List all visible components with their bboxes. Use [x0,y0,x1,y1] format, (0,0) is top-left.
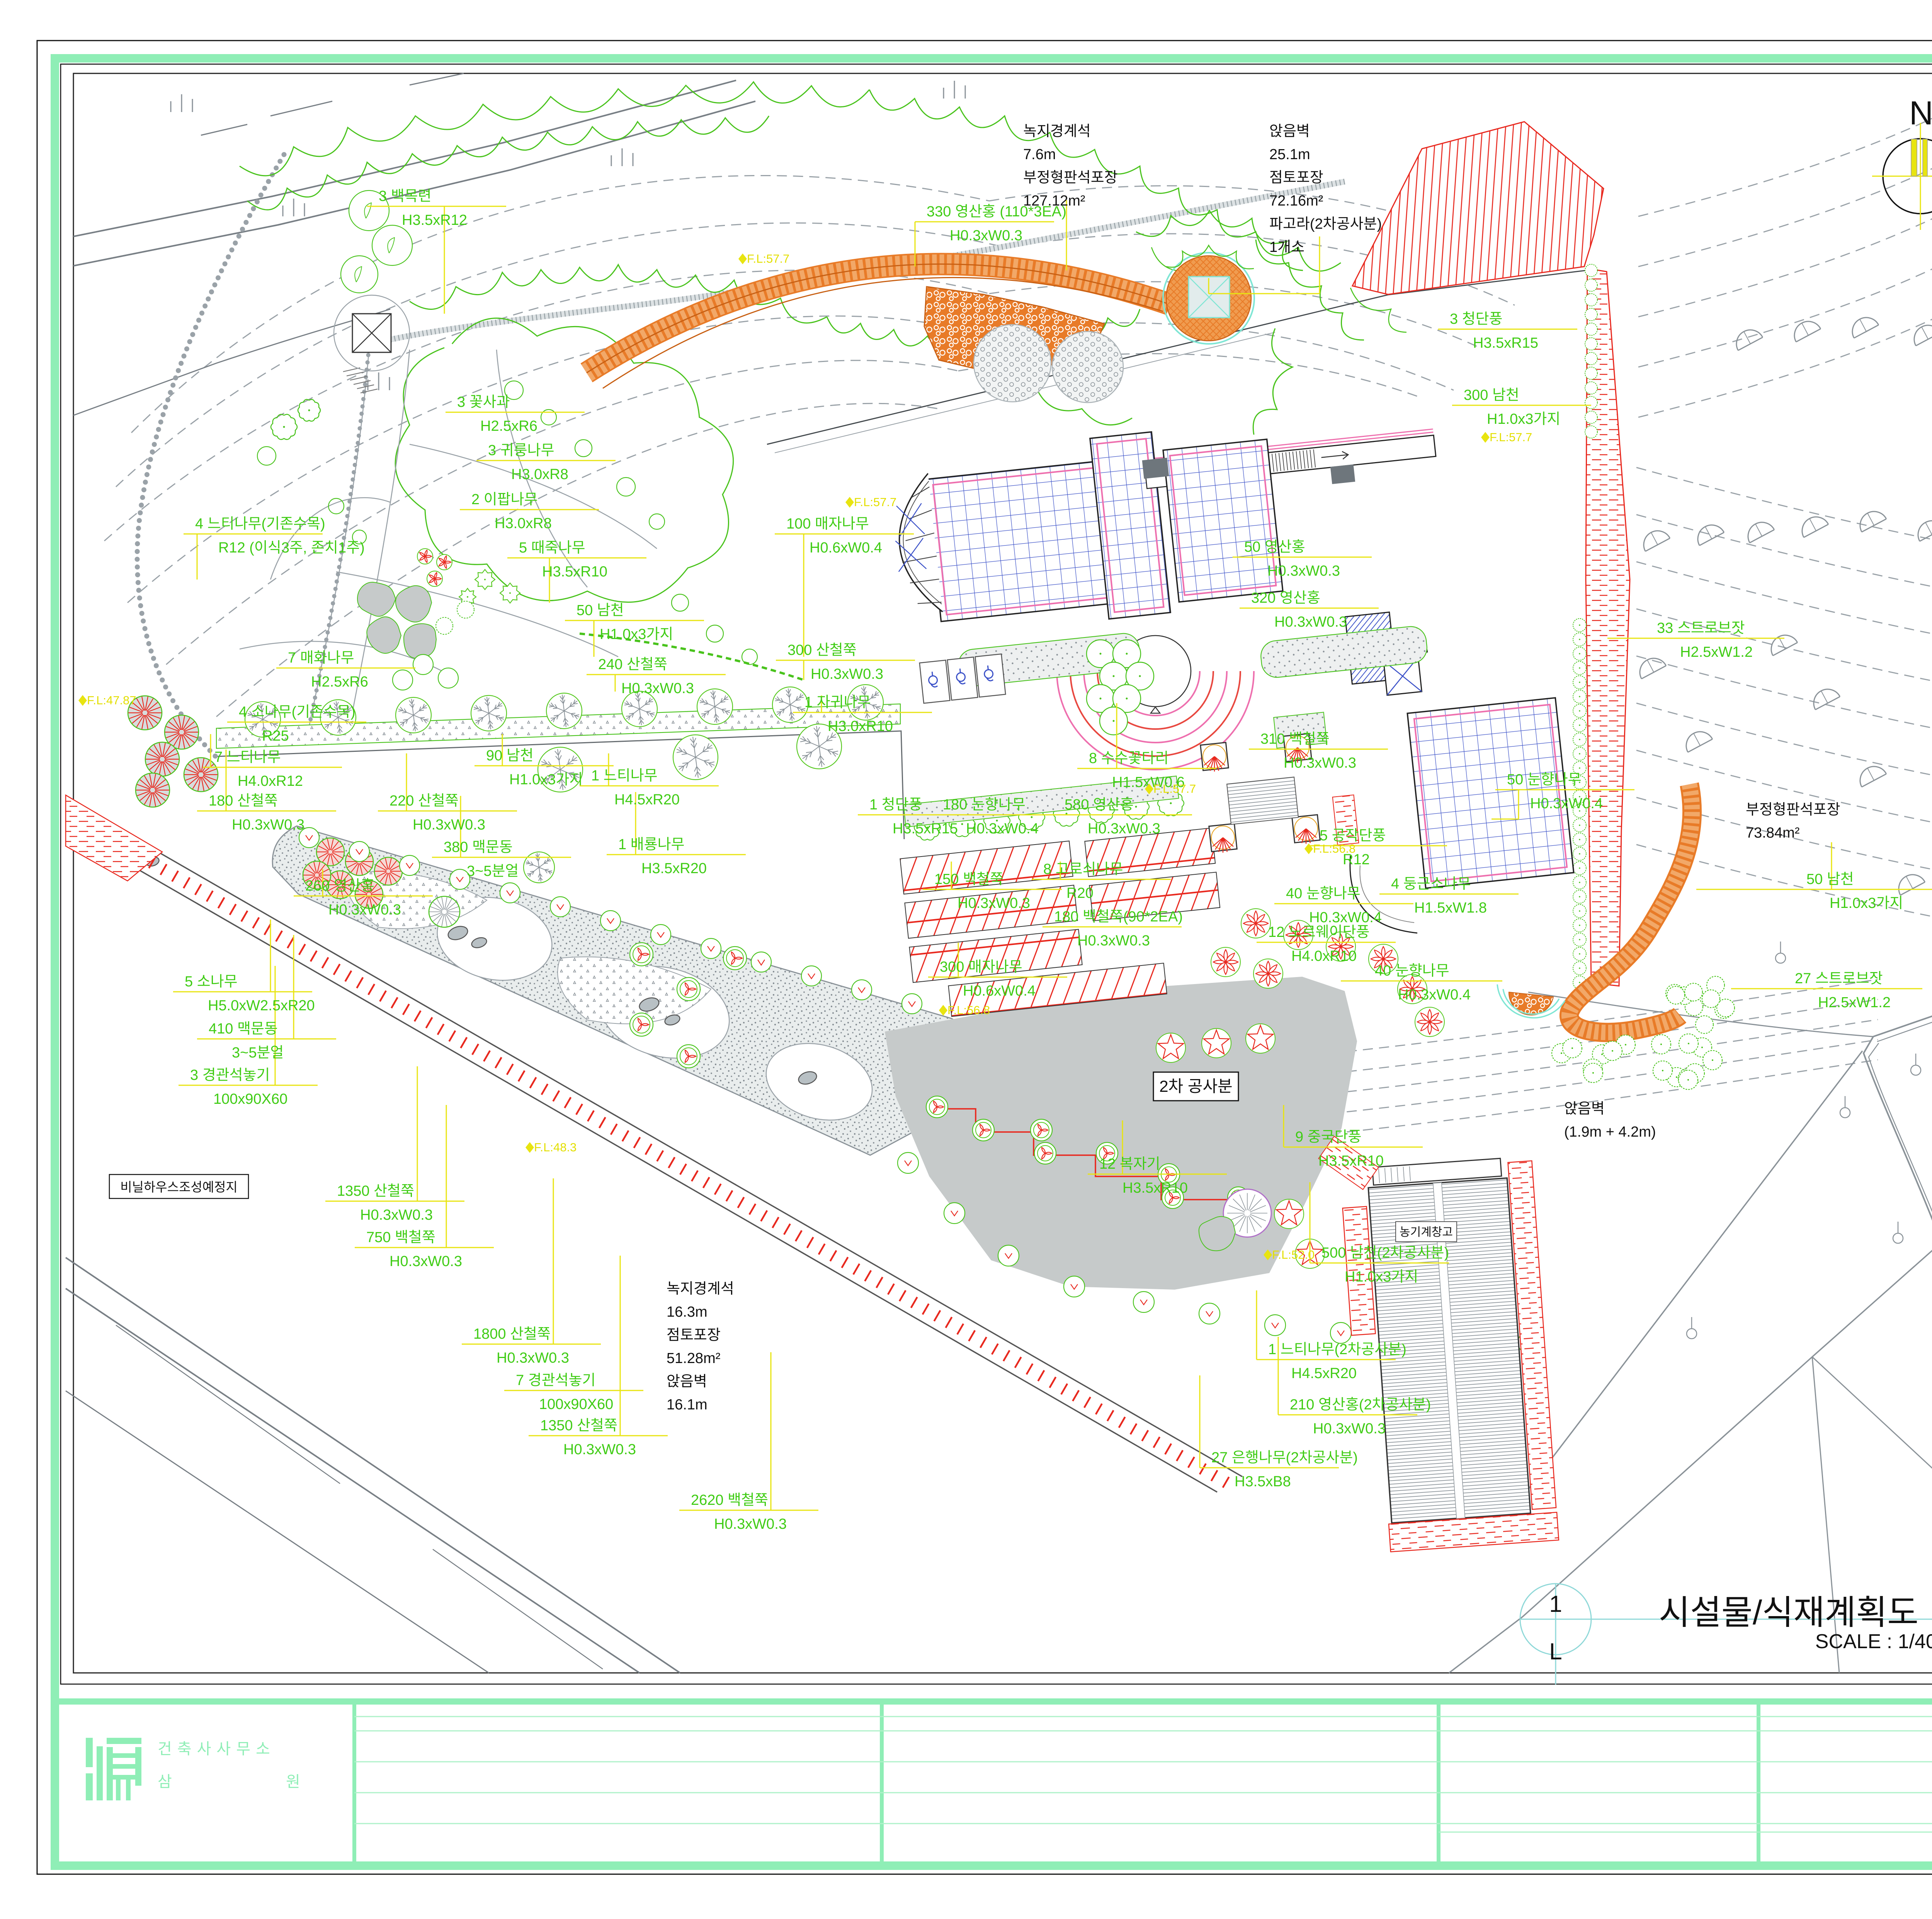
svg-text:농기계창고: 농기계창고 [1400,1226,1453,1239]
svg-text:72.16m²: 72.16m² [1269,193,1323,209]
svg-text:H0.3xW0.3: H0.3xW0.3 [360,1207,433,1223]
svg-text:2차 공사분: 2차 공사분 [1159,1077,1233,1095]
svg-text:H2.5xR6: H2.5xR6 [480,418,537,434]
svg-text:H3.0xR8: H3.0xR8 [495,515,552,532]
svg-text:점토포장: 점토포장 [667,1327,721,1343]
svg-text:300 매자나무: 300 매자나무 [940,959,1022,975]
svg-text:H0.6xW0.4: H0.6xW0.4 [963,983,1036,999]
svg-text:H0.3xW0.3: H0.3xW0.3 [1077,933,1150,949]
svg-text:R12 (이식3주, 존치1주): R12 (이식3주, 존치1주) [218,540,365,556]
svg-text:녹지경계석: 녹지경계석 [667,1281,734,1297]
svg-text:1: 1 [1549,1591,1562,1617]
svg-text:2 이팝나무: 2 이팝나무 [471,491,538,508]
svg-text:1개소: 1개소 [1269,239,1304,255]
svg-text:H0.3xW0.3: H0.3xW0.3 [714,1516,787,1532]
svg-text:F.L:57.7: F.L:57.7 [747,252,789,265]
svg-text:H3.5xR12: H3.5xR12 [402,212,467,228]
svg-text:F.L:48.3: F.L:48.3 [534,1141,577,1154]
svg-text:260 영산홍: 260 영산홍 [305,878,374,894]
svg-text:9 중국단풍: 9 중국단풍 [1295,1129,1362,1145]
svg-text:1350 산철쭉: 1350 산철쭉 [337,1183,414,1199]
svg-text:H0.3xW0.3: H0.3xW0.3 [232,817,304,833]
svg-text:410 맥문동: 410 맥문동 [209,1021,278,1037]
svg-text:51.28m²: 51.28m² [667,1350,720,1367]
svg-text:H0.3xW0.3: H0.3xW0.3 [1088,821,1160,837]
svg-text:H0.3xW0.3: H0.3xW0.3 [950,228,1022,244]
svg-text:부정형판석포장: 부정형판석포장 [1023,170,1118,186]
svg-text:1350 산철쭉: 1350 산철쭉 [540,1418,617,1434]
svg-text:H3.5xR10: H3.5xR10 [1318,1153,1384,1169]
svg-text:100x90X60: 100x90X60 [213,1091,287,1107]
svg-text:5 소나무: 5 소나무 [185,974,238,990]
svg-text:H0.6xW0.4: H0.6xW0.4 [810,540,882,556]
svg-text:H0.3xW0.3: H0.3xW0.3 [621,680,694,697]
svg-text:H3.5xR10: H3.5xR10 [1122,1180,1188,1196]
svg-text:녹지경계석: 녹지경계석 [1023,123,1091,139]
svg-text:300 남천: 300 남천 [1464,387,1519,403]
svg-text:H5.0xW2.5xR20: H5.0xW2.5xR20 [208,998,315,1014]
svg-text:H3.5xR10: H3.5xR10 [542,564,607,580]
svg-text:H0.3xW0.3: H0.3xW0.3 [1274,614,1347,630]
svg-text:40 눈향나무: 40 눈향나무 [1286,886,1361,902]
svg-text:180 산철쭉: 180 산철쭉 [209,793,278,809]
svg-text:320 영산홍: 320 영산홍 [1251,590,1320,606]
svg-text:180 백철쭉(90*2EA): 180 백철쭉(90*2EA) [1054,909,1183,925]
svg-text:H2.5xW1.2: H2.5xW1.2 [1680,644,1753,660]
svg-text:R25: R25 [262,728,289,744]
svg-text:L: L [1549,1639,1562,1664]
svg-text:3 청단풍: 3 청단풍 [1450,311,1503,327]
svg-text:F.L:57.7: F.L:57.7 [1153,782,1196,795]
svg-text:25.1m: 25.1m [1269,146,1310,163]
svg-text:3 경관석놓기: 3 경관석놓기 [190,1067,270,1083]
svg-text:220 산철쭉: 220 산철쭉 [389,793,459,809]
svg-text:비닐하우스조성예정지: 비닐하우스조성예정지 [120,1180,238,1194]
svg-text:40 눈향나무: 40 눈향나무 [1375,963,1449,979]
svg-text:R20: R20 [1066,885,1094,901]
svg-text:앉음벽: 앉음벽 [1564,1101,1605,1117]
svg-text:50 영산홍: 50 영산홍 [1244,539,1305,555]
svg-text:90 남천: 90 남천 [486,748,534,764]
svg-text:73.84m²: 73.84m² [1746,825,1799,841]
svg-text:27 스트로브잣: 27 스트로브잣 [1795,971,1883,987]
svg-text:180 눈향나무: 180 눈향나무 [943,797,1026,813]
svg-text:750 백철쭉: 750 백철쭉 [366,1229,435,1246]
svg-text:H4.5xR20: H4.5xR20 [1291,1365,1357,1382]
svg-text:H3.5xR15: H3.5xR15 [1473,335,1538,351]
svg-text:33 스트로브잣: 33 스트로브잣 [1657,620,1745,636]
svg-text:F.L:47.87: F.L:47.87 [87,693,136,707]
svg-text:210 영산홍(2차공사분): 210 영산홍(2차공사분) [1290,1397,1431,1413]
svg-text:4 소나무(기존수목): 4 소나무(기존수목) [239,704,355,720]
svg-text:F.L:57.7: F.L:57.7 [1490,430,1532,444]
svg-text:7 느티나무: 7 느티나무 [214,749,281,765]
svg-text:건축사사무소: 건축사사무소 [158,1741,276,1758]
svg-text:8 수수꽃다리: 8 수수꽃다리 [1089,750,1169,767]
svg-text:F.L:56.8: F.L:56.8 [1313,842,1355,855]
svg-text:F.L:57.7: F.L:57.7 [854,495,896,509]
svg-text:H0.3xW0.3: H0.3xW0.3 [1313,1421,1386,1437]
svg-text:H0.3xW0.4: H0.3xW0.4 [966,821,1039,837]
svg-text:F.L:52.0: F.L:52.0 [1272,1248,1315,1261]
svg-text:SCALE : 1/400(A1): SCALE : 1/400(A1) [1815,1630,1932,1653]
svg-text:50 남천: 50 남천 [1806,871,1854,887]
svg-text:580 영산홍: 580 영산홍 [1065,797,1134,813]
svg-text:1 느티나무: 1 느티나무 [591,768,658,784]
svg-text:7 매화나무: 7 매화나무 [288,650,354,666]
svg-text:1800 산철쭉: 1800 산철쭉 [473,1326,551,1342]
svg-text:3 꽃사과: 3 꽃사과 [457,394,510,410]
svg-text:원: 원 [286,1773,300,1790]
svg-text:H0.3xW0.3: H0.3xW0.3 [328,902,401,918]
svg-text:5 공작단풍: 5 공작단풍 [1320,828,1386,844]
svg-text:H0.3xW0.3: H0.3xW0.3 [413,817,485,833]
svg-text:50 남천: 50 남천 [577,602,624,619]
svg-text:H0.3xW0.3: H0.3xW0.3 [811,666,883,682]
svg-text:100x90X60: 100x90X60 [539,1396,613,1412]
svg-text:8 고로쇠나무: 8 고로쇠나무 [1043,861,1123,877]
svg-text:H1.0x3가지: H1.0x3가지 [1830,895,1903,911]
svg-text:H1.0x3가지: H1.0x3가지 [509,772,583,788]
svg-text:삼: 삼 [158,1773,172,1790]
svg-text:H0.3xW0.4: H0.3xW0.4 [1398,987,1471,1003]
svg-text:H4.0xR12: H4.0xR12 [238,773,303,789]
svg-text:H3.0xR8: H3.0xR8 [511,466,568,483]
svg-text:앉음벽: 앉음벽 [1269,123,1310,139]
svg-text:H2.5xR6: H2.5xR6 [311,674,368,690]
svg-text:3~5분얼: 3~5분얼 [467,863,519,879]
svg-text:12 노르웨이단풍: 12 노르웨이단풍 [1268,924,1370,940]
svg-text:H1.0x3가지: H1.0x3가지 [600,626,673,642]
svg-text:H0.3xW0.3: H0.3xW0.3 [957,895,1030,911]
svg-text:H4.0xR10: H4.0xR10 [1291,948,1357,964]
svg-text:(1.9m + 4.2m): (1.9m + 4.2m) [1564,1124,1656,1140]
svg-text:2620 백철쭉: 2620 백철쭉 [691,1492,768,1508]
svg-text:380 맥문동: 380 맥문동 [444,839,513,855]
svg-text:3 백목련: 3 백목련 [379,188,432,204]
svg-text:4 느티나무(기존수목): 4 느티나무(기존수목) [195,516,325,532]
svg-text:시설물/식재계획도: 시설물/식재계획도 [1659,1593,1918,1632]
svg-text:H3.5xB8: H3.5xB8 [1235,1474,1291,1490]
svg-text:16.3m: 16.3m [667,1304,707,1320]
svg-text:H4.5xR20: H4.5xR20 [614,792,680,808]
svg-text:H0.3xW0.4: H0.3xW0.4 [1309,909,1382,926]
svg-text:H0.3xW0.3: H0.3xW0.3 [389,1253,462,1270]
svg-text:1 배룡나무: 1 배룡나무 [618,836,685,853]
svg-text:310 백철쭉: 310 백철쭉 [1260,731,1330,747]
svg-text:1 청단풍: 1 청단풍 [869,797,922,813]
svg-text:H0.3xW0.3: H0.3xW0.3 [1267,563,1340,579]
svg-text:1 느티나무(2차공사분): 1 느티나무(2차공사분) [1268,1341,1406,1358]
svg-text:100 매자나무: 100 매자나무 [786,516,869,532]
svg-text:점토포장: 점토포장 [1269,170,1323,186]
svg-text:500 남천(2차공사분): 500 남천(2차공사분) [1321,1245,1449,1261]
svg-text:앉음벽: 앉음벽 [667,1373,707,1390]
svg-text:H3.5xR20: H3.5xR20 [641,860,707,877]
svg-text:3 귀룽나무: 3 귀룽나무 [488,442,554,459]
svg-text:4 둥근소나무: 4 둥근소나무 [1391,876,1471,892]
svg-text:H1.0x3가지: H1.0x3가지 [1345,1269,1418,1285]
svg-text:300 산철쭉: 300 산철쭉 [787,642,857,658]
svg-text:127.12m²: 127.12m² [1023,193,1085,209]
svg-text:H1.5xW1.8: H1.5xW1.8 [1414,900,1487,916]
svg-text:5 때죽나무: 5 때죽나무 [519,540,585,556]
svg-text:H3.5xR15: H3.5xR15 [893,821,958,837]
svg-text:H0.3xW0.3: H0.3xW0.3 [1284,755,1356,771]
svg-text:H2.5xW1.2: H2.5xW1.2 [1818,994,1891,1011]
svg-text:16.1m: 16.1m [667,1397,707,1413]
svg-text:H1.0x3가지: H1.0x3가지 [1487,411,1560,427]
svg-text:부정형판석포장: 부정형판석포장 [1746,802,1840,818]
svg-text:7 경관석놓기: 7 경관석놓기 [516,1372,596,1389]
svg-text:파고라(2차공사분): 파고라(2차공사분) [1269,216,1382,232]
svg-text:240 산철쭉: 240 산철쭉 [598,656,667,673]
svg-text:3~5분얼: 3~5분얼 [232,1045,284,1061]
svg-text:27 은행나무(2차공사분): 27 은행나무(2차공사분) [1211,1450,1358,1466]
svg-text:12 복자기: 12 복자기 [1099,1156,1160,1172]
svg-text:H0.3xW0.3: H0.3xW0.3 [563,1441,636,1458]
svg-text:1 자귀나무: 1 자귀나무 [804,694,871,710]
svg-text:H0.3xW0.4: H0.3xW0.4 [1530,795,1603,812]
svg-text:H3.0xR10: H3.0xR10 [828,718,893,734]
svg-text:7.6m: 7.6m [1023,146,1056,163]
svg-text:150 백철쭉: 150 백철쭉 [934,871,1003,887]
svg-text:50 눈향나무: 50 눈향나무 [1507,772,1582,788]
svg-text:H0.3xW0.3: H0.3xW0.3 [497,1350,569,1366]
svg-text:F.L:56.8: F.L:56.8 [947,1003,990,1017]
